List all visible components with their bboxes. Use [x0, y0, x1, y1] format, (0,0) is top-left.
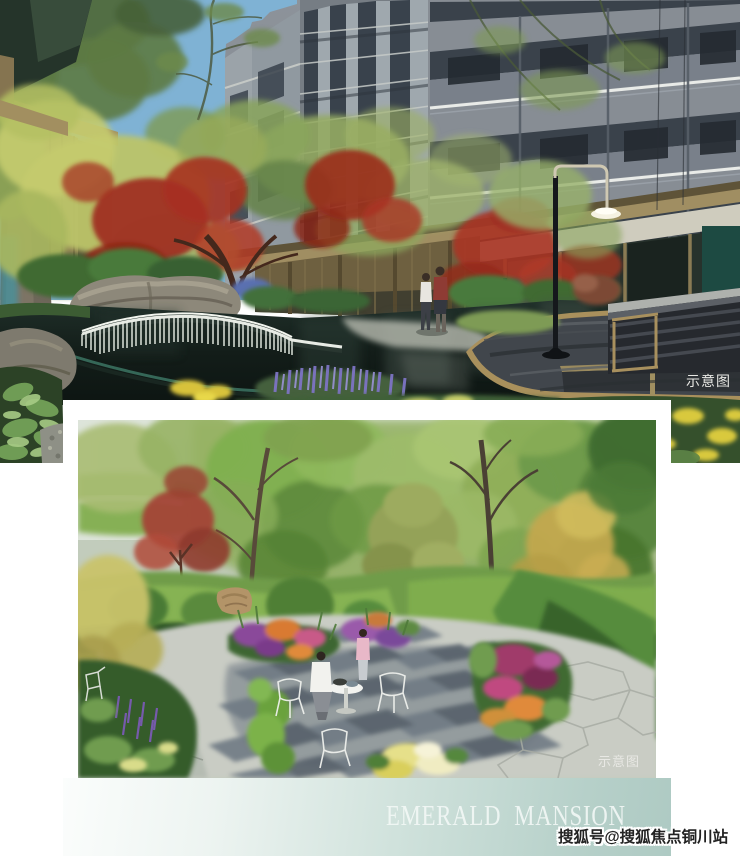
- svg-text:示意图: 示意图: [686, 373, 731, 389]
- svg-text:示意图: 示意图: [598, 754, 640, 769]
